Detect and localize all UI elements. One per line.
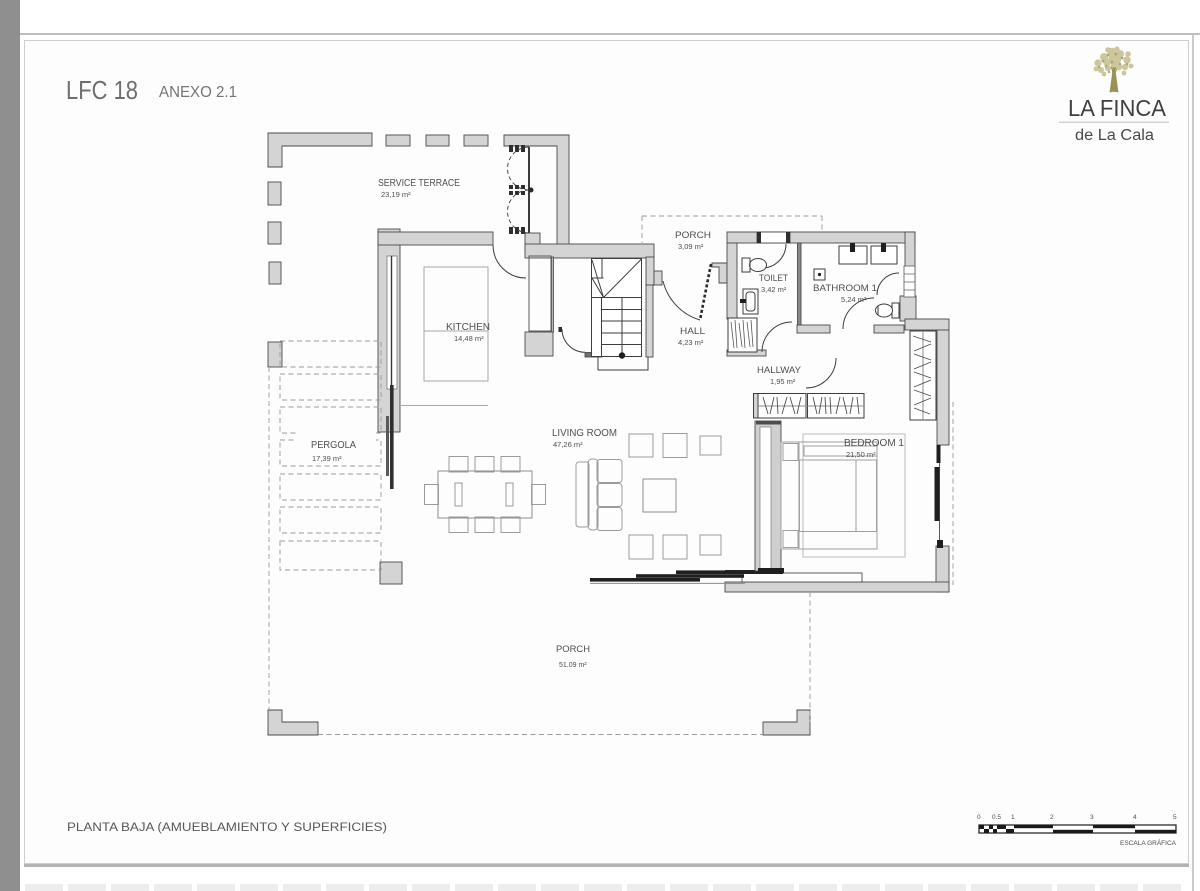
- svg-text:0: 0: [977, 814, 981, 821]
- svg-text:0.5: 0.5: [992, 814, 1001, 821]
- svg-text:23,19 m²: 23,19 m²: [381, 190, 411, 199]
- svg-text:LIVING ROOM: LIVING ROOM: [552, 427, 617, 439]
- svg-text:47,26 m²: 47,26 m²: [553, 440, 583, 449]
- svg-text:4,23 m²: 4,23 m²: [678, 338, 704, 347]
- svg-text:2: 2: [1050, 814, 1054, 821]
- svg-text:5,24 m²: 5,24 m²: [841, 295, 867, 304]
- svg-text:ESCALA GRÁFICA: ESCALA GRÁFICA: [1120, 838, 1177, 847]
- svg-text:TOILET: TOILET: [759, 273, 788, 284]
- svg-text:HALLWAY: HALLWAY: [757, 365, 802, 376]
- svg-text:5: 5: [1173, 814, 1177, 821]
- svg-text:LFC 18: LFC 18: [66, 75, 138, 105]
- svg-text:SERVICE TERRACE: SERVICE TERRACE: [378, 177, 460, 189]
- svg-text:ANEXO 2.1: ANEXO 2.1: [159, 84, 237, 101]
- svg-text:3,09 m²: 3,09 m²: [678, 242, 704, 251]
- svg-text:51.09 m²: 51.09 m²: [559, 662, 587, 669]
- svg-text:21,50 m²: 21,50 m²: [846, 450, 876, 459]
- svg-text:PERGOLA: PERGOLA: [311, 440, 356, 451]
- svg-text:de La Cala: de La Cala: [1075, 127, 1154, 144]
- svg-text:HALL: HALL: [680, 326, 705, 337]
- svg-text:14,48 m²: 14,48 m²: [454, 334, 484, 343]
- svg-text:1: 1: [1011, 814, 1015, 821]
- svg-text:3,42 m²: 3,42 m²: [761, 285, 787, 294]
- svg-text:BEDROOM 1: BEDROOM 1: [844, 437, 904, 449]
- svg-text:1,95 m²: 1,95 m²: [770, 377, 796, 386]
- svg-text:PORCH: PORCH: [556, 644, 590, 655]
- svg-text:17,39 m²: 17,39 m²: [312, 454, 342, 463]
- svg-text:KITCHEN: KITCHEN: [446, 321, 490, 333]
- svg-text:4: 4: [1133, 814, 1137, 821]
- svg-text:LA FINCA: LA FINCA: [1068, 95, 1167, 121]
- svg-text:PORCH: PORCH: [675, 230, 711, 241]
- svg-text:3: 3: [1090, 814, 1094, 821]
- svg-text:PLANTA BAJA (AMUEBLAMIENTO Y S: PLANTA BAJA (AMUEBLAMIENTO Y SUPERFICIES…: [67, 822, 387, 834]
- svg-text:BATHROOM 1: BATHROOM 1: [813, 283, 877, 294]
